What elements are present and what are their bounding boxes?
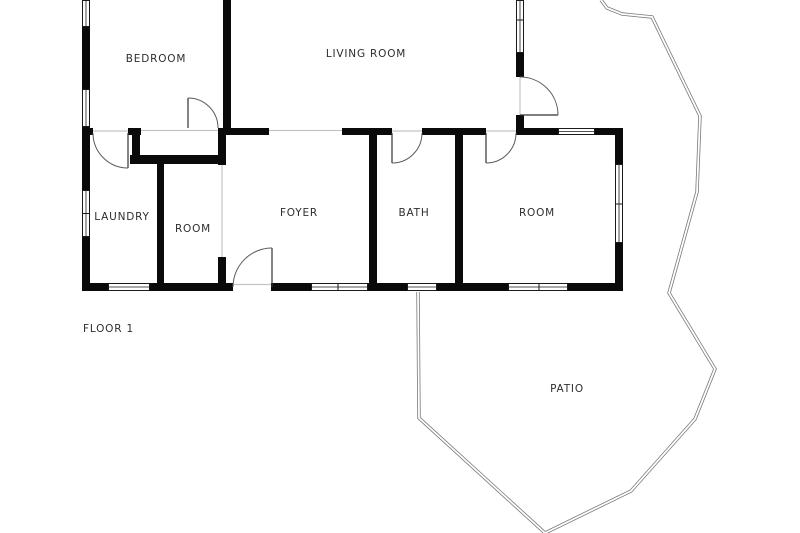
- room-label-laundry: LAUNDRY: [94, 211, 150, 223]
- room-label-bedroom: BEDROOM: [126, 53, 186, 65]
- floor-label: FLOOR 1: [83, 323, 134, 335]
- room-label-living-room: LIVING ROOM: [326, 48, 406, 60]
- floor-plan-page: BEDROOM LIVING ROOM LAUNDRY ROOM FOYER B…: [0, 0, 800, 533]
- room-label-bath: BATH: [398, 207, 429, 219]
- floor-plan-svg: BEDROOM LIVING ROOM LAUNDRY ROOM FOYER B…: [0, 0, 800, 533]
- room-label-room-right: ROOM: [519, 207, 555, 219]
- room-label-room-small: ROOM: [175, 223, 211, 235]
- walls: [82, 0, 623, 291]
- room-label-patio: PATIO: [550, 383, 584, 395]
- room-label-foyer: FOYER: [280, 207, 318, 219]
